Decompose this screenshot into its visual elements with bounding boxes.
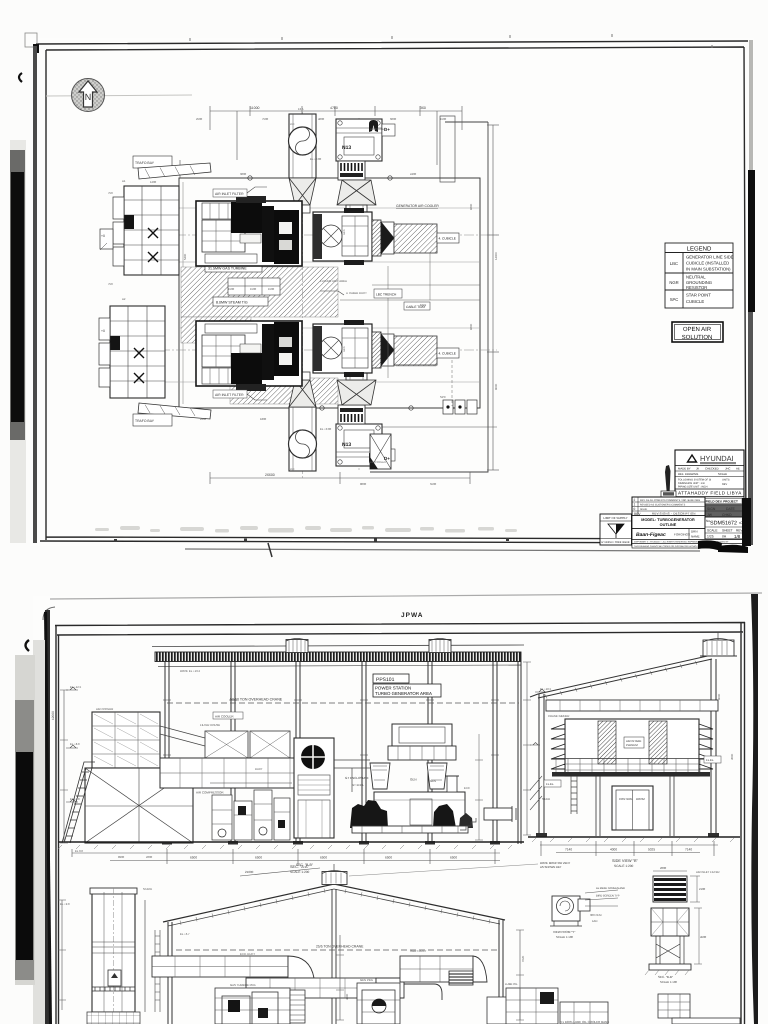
svg-text:RESISTOR: RESISTOR <box>686 285 707 290</box>
svg-text:AIR INLET FILTER: AIR INLET FILTER <box>696 870 720 874</box>
svg-text:0: 0 <box>634 507 636 511</box>
svg-text:FORGINGS: FORGINGS <box>674 533 690 537</box>
svg-text:AIR COOLER: AIR COOLER <box>370 128 386 131</box>
svg-text:4. CUBICLE: 4. CUBICLE <box>439 237 456 241</box>
svg-text:SPC: SPC <box>440 395 446 399</box>
svg-text:DUCT: DUCT <box>255 767 263 771</box>
svg-text:NGR: NGR <box>420 303 426 307</box>
svg-text:3600: 3600 <box>240 172 247 176</box>
svg-text:GEN: GEN <box>343 229 346 235</box>
svg-text:MODEL: TURBOGENERATOR: MODEL: TURBOGENERATOR <box>641 518 695 522</box>
svg-text:5500: 5500 <box>430 482 437 486</box>
svg-text:7500: 7500 <box>262 117 269 121</box>
svg-text:SEC. "B-B": SEC. "B-B" <box>296 863 314 867</box>
svg-text:4000: 4000 <box>318 117 325 121</box>
svg-text:AIR COOLER: AIR COOLER <box>370 461 386 464</box>
svg-text:2: 2 <box>634 498 636 502</box>
svg-text:12000: 12000 <box>51 711 55 720</box>
svg-text:GEN PKG: GEN PKG <box>360 978 373 982</box>
svg-text:2500: 2500 <box>196 117 203 121</box>
svg-text:4000: 4000 <box>345 993 349 1000</box>
svg-text:2600: 2600 <box>146 855 153 859</box>
svg-text:4. CABLE DUCT: 4. CABLE DUCT <box>346 291 367 295</box>
svg-text:SCALE 1:100: SCALE 1:100 <box>660 980 677 984</box>
svg-text:t/A: t/A <box>722 535 727 539</box>
svg-text:21000: 21000 <box>245 870 254 874</box>
svg-text:GT ENCL: GT ENCL <box>352 783 365 787</box>
svg-text:4. CUBICLE: 4. CUBICLE <box>439 352 456 356</box>
svg-text:AIR COMPRESSOR: AIR COMPRESSOR <box>196 791 224 795</box>
svg-text:7620: 7620 <box>521 955 525 962</box>
svg-text:REV: REV <box>722 483 727 486</box>
svg-text:UNITS: UNITS <box>722 478 730 481</box>
svg-text:TURBO GENERATOR AREA: TURBO GENERATOR AREA <box>375 691 432 696</box>
svg-text:N13: N13 <box>342 442 351 448</box>
svg-text:6500: 6500 <box>450 856 457 860</box>
svg-text:MADE BY: MADE BY <box>678 467 691 471</box>
svg-text:+0: +0 <box>101 234 105 238</box>
svg-text:SEC. "B-B": SEC. "B-B" <box>658 975 673 979</box>
svg-text:FILTER HOUSE: FILTER HOUSE <box>200 723 220 727</box>
svg-text:TRAFO BAY: TRAFO BAY <box>135 161 155 165</box>
svg-text:4000: 4000 <box>610 848 617 852</box>
svg-text:GEN: GEN <box>343 346 346 352</box>
svg-text:SDM51672: SDM51672 <box>710 521 737 527</box>
svg-text:SCALE 1:200: SCALE 1:200 <box>614 864 634 868</box>
svg-text:450: 450 <box>290 468 295 471</box>
svg-text:PPS101: PPS101 <box>376 677 395 683</box>
svg-text:LIMIT OF SUPPLY: LIMIT OF SUPPLY <box>603 516 627 520</box>
svg-text:NEUTRAL: NEUTRAL <box>686 275 706 280</box>
svg-text:NAME: NAME <box>691 535 700 539</box>
svg-text:VIEW FROM "Y": VIEW FROM "Y" <box>553 930 575 934</box>
svg-text:AIR INLET FILTER: AIR INLET FILTER <box>215 192 244 196</box>
svg-text:450: 450 <box>290 123 295 126</box>
svg-text:PLENUM: PLENUM <box>626 743 638 747</box>
svg-text:OUTLINE: OUTLINE <box>660 523 677 527</box>
svg-text:6500: 6500 <box>385 856 392 860</box>
svg-text:CONTROL: CONTROL <box>619 797 633 801</box>
svg-text:SCALE: SCALE <box>707 529 717 533</box>
svg-text:8900: 8900 <box>118 855 125 859</box>
svg-text:SIDE VIEW "B": SIDE VIEW "B" <box>612 859 639 863</box>
svg-text:11000: 11000 <box>250 106 260 110</box>
svg-text:AIR COOLER: AIR COOLER <box>96 707 113 711</box>
svg-text:EXC: EXC <box>464 786 470 790</box>
svg-text:2200: 2200 <box>200 417 207 421</box>
svg-text:INLET DUCT: INLET DUCT <box>410 949 427 953</box>
svg-text:4500: 4500 <box>700 935 707 939</box>
svg-text:EL +9.0: EL +9.0 <box>60 902 70 906</box>
svg-text:Baan-Figeac: Baan-Figeac <box>636 532 666 538</box>
svg-text:AL MESH SCREEN AND: AL MESH SCREEN AND <box>596 887 625 890</box>
svg-text:6500: 6500 <box>255 856 262 860</box>
svg-text:FUTURE UNIT AREA: FUTURE UNIT AREA <box>320 279 347 283</box>
svg-text:A1: A1 <box>122 179 126 183</box>
svg-text:6500: 6500 <box>320 856 327 860</box>
svg-text:FL.EL.: FL.EL. <box>706 758 714 762</box>
svg-text:BIRD SCREEN TYP: BIRD SCREEN TYP <box>596 895 620 898</box>
svg-text:5400: 5400 <box>183 253 187 260</box>
svg-text:AIR COOLER: AIR COOLER <box>215 714 234 718</box>
svg-text:31.5MW GAS TURBINE: 31.5MW GAS TURBINE <box>208 267 247 271</box>
svg-text:REV. AS ALLOTMENTS COMMENTS /: REV. AS ALLOTMENTS COMMENTS / INC. BASE … <box>640 499 700 502</box>
svg-text:8000: 8000 <box>360 482 367 486</box>
svg-text:9000: 9000 <box>717 693 721 700</box>
svg-text:CUBICLE (INSTALLED: CUBICLE (INSTALLED <box>686 261 729 266</box>
svg-text:14000: 14000 <box>494 252 498 260</box>
svg-text:AE: AE <box>736 467 740 471</box>
svg-text:AS SHOWN DET: AS SHOWN DET <box>540 865 562 869</box>
svg-text:SOLUTION: SOLUTION <box>682 334 713 341</box>
svg-text:+0: +0 <box>101 329 105 333</box>
svg-text:8200: 8200 <box>469 323 473 330</box>
svg-text:GEN: GEN <box>410 778 417 782</box>
svg-text:EXH. DUCT: EXH. DUCT <box>240 952 255 956</box>
svg-text:26600: 26600 <box>265 473 275 477</box>
svg-text:CHECKED: CHECKED <box>705 467 719 471</box>
svg-text:300 CFM: 300 CFM <box>590 913 602 917</box>
svg-text:1200: 1200 <box>150 180 157 184</box>
svg-text:POWER STATION: POWER STATION <box>375 686 411 691</box>
svg-text:4 x 100% LUBE OIL COOLER BANK: 4 x 100% LUBE OIL COOLER BANK <box>560 1020 609 1024</box>
svg-text:JK: JK <box>696 467 699 471</box>
svg-text:9000: 9000 <box>494 383 498 390</box>
svg-text:DRN: DRN <box>691 530 698 534</box>
svg-text:A2: A2 <box>122 297 126 301</box>
svg-text:OPEN AIR: OPEN AIR <box>683 326 712 333</box>
svg-text:FL.EL.: FL.EL. <box>546 782 554 786</box>
svg-text:REVISIONS - DESCRIPTION: REVISIONS - DESCRIPTION <box>652 512 696 516</box>
svg-text:LBC: LBC <box>670 261 678 266</box>
svg-text:EL +0.00: EL +0.00 <box>310 157 322 161</box>
svg-text:ISSUE: ISSUE <box>640 508 648 511</box>
svg-text:5025: 5025 <box>648 848 655 852</box>
svg-text:2000: 2000 <box>660 866 667 870</box>
svg-text:ROOF EL +13.2: ROOF EL +13.2 <box>180 669 200 673</box>
svg-text:TRAFO BAY: TRAFO BAY <box>135 419 155 423</box>
svg-text:8200: 8200 <box>469 203 473 210</box>
svg-text:7140: 7140 <box>565 848 572 852</box>
svg-text:NGR: NGR <box>669 280 678 285</box>
svg-text:GEN: GEN <box>430 779 436 783</box>
svg-text:LUBE OIL: LUBE OIL <box>505 982 518 986</box>
svg-text:ROOM: ROOM <box>636 797 645 801</box>
svg-text:LBC TRENCH: LBC TRENCH <box>376 293 397 297</box>
svg-text:1500: 1500 <box>228 287 235 291</box>
svg-text:EL +0.00: EL +0.00 <box>320 427 332 431</box>
svg-text:EL +6.7: EL +6.7 <box>180 932 190 936</box>
svg-text:750: 750 <box>108 282 113 286</box>
svg-text:6500: 6500 <box>190 856 197 860</box>
svg-text:6000: 6000 <box>390 117 397 121</box>
svg-text:REF. DRAWING: REF. DRAWING <box>678 472 698 476</box>
svg-text:FAN: FAN <box>592 919 597 923</box>
svg-text:JPWA: JPWA <box>401 612 423 619</box>
svg-text:GENERATOR AIR COOLER: GENERATOR AIR COOLER <box>396 204 439 208</box>
svg-text:1/8: 1/8 <box>734 534 741 539</box>
svg-text:1800: 1800 <box>260 417 267 421</box>
svg-text:STAR POINT: STAR POINT <box>686 293 711 298</box>
svg-text:4700: 4700 <box>330 106 338 110</box>
svg-text:2400: 2400 <box>410 172 417 176</box>
svg-text:GENERATOR LINE SIDE: GENERATOR LINE SIDE <box>686 255 734 260</box>
svg-text:7140: 7140 <box>685 848 692 852</box>
svg-text:IN MAIN SUBSTATION): IN MAIN SUBSTATION) <box>686 267 731 272</box>
svg-text:360: 360 <box>420 106 426 110</box>
svg-text:HYUNDAI: HYUNDAI <box>700 454 734 463</box>
svg-text:13.5: 13.5 <box>298 107 304 111</box>
svg-text:CUBICLE: CUBICLE <box>686 299 704 304</box>
svg-text:SHEET: SHEET <box>722 529 733 533</box>
svg-text:EL +8.0: EL +8.0 <box>70 742 80 746</box>
svg-text:1500: 1500 <box>250 287 257 291</box>
svg-text:50/10 TON OVERHEAD CRANE: 50/10 TON OVERHEAD CRANE <box>230 698 283 702</box>
svg-text:GAS TURBINE PKG: GAS TURBINE PKG <box>230 983 256 987</box>
svg-text:PIPING SIZE UNIT : INCH: PIPING SIZE UNIT : INCH <box>678 485 708 488</box>
svg-text:1/25: 1/25 <box>707 535 714 539</box>
svg-text:GT ENCLOSURE: GT ENCLOSURE <box>345 776 369 780</box>
svg-text:1: 1 <box>634 503 636 507</box>
svg-text:1500: 1500 <box>268 287 275 291</box>
svg-text:HYUNDAI / FREE ISSUE: HYUNDAI / FREE ISSUE <box>601 541 630 544</box>
svg-text:750: 750 <box>108 191 113 195</box>
svg-text:8.0MW STEAM T/G: 8.0MW STEAM T/G <box>216 301 248 305</box>
svg-text:ATTAHADDY FIELD LIBYA: ATTAHADDY FIELD LIBYA <box>678 491 742 496</box>
svg-text:4500: 4500 <box>730 753 734 760</box>
svg-text:JHC: JHC <box>725 467 730 471</box>
svg-text:N: N <box>85 92 92 102</box>
svg-text:STAIR: STAIR <box>542 797 550 801</box>
svg-text:2100: 2100 <box>699 887 706 891</box>
svg-text:1500: 1500 <box>440 117 447 121</box>
svg-text:SCALE 1:100: SCALE 1:100 <box>556 935 573 939</box>
svg-text:REVISED AS CUSTOMER'S COMMENTS: REVISED AS CUSTOMER'S COMMENTS <box>640 504 686 507</box>
svg-text:EL 0.0: EL 0.0 <box>75 849 83 853</box>
svg-text:N13: N13 <box>342 145 351 151</box>
svg-text:SPC: SPC <box>670 297 679 302</box>
svg-text:LEGEND: LEGEND <box>687 246 712 253</box>
svg-text:STACK: STACK <box>143 887 152 891</box>
svg-text:CRANE GIRDER: CRANE GIRDER <box>548 714 569 718</box>
svg-text:SCALE: SCALE <box>718 472 727 476</box>
